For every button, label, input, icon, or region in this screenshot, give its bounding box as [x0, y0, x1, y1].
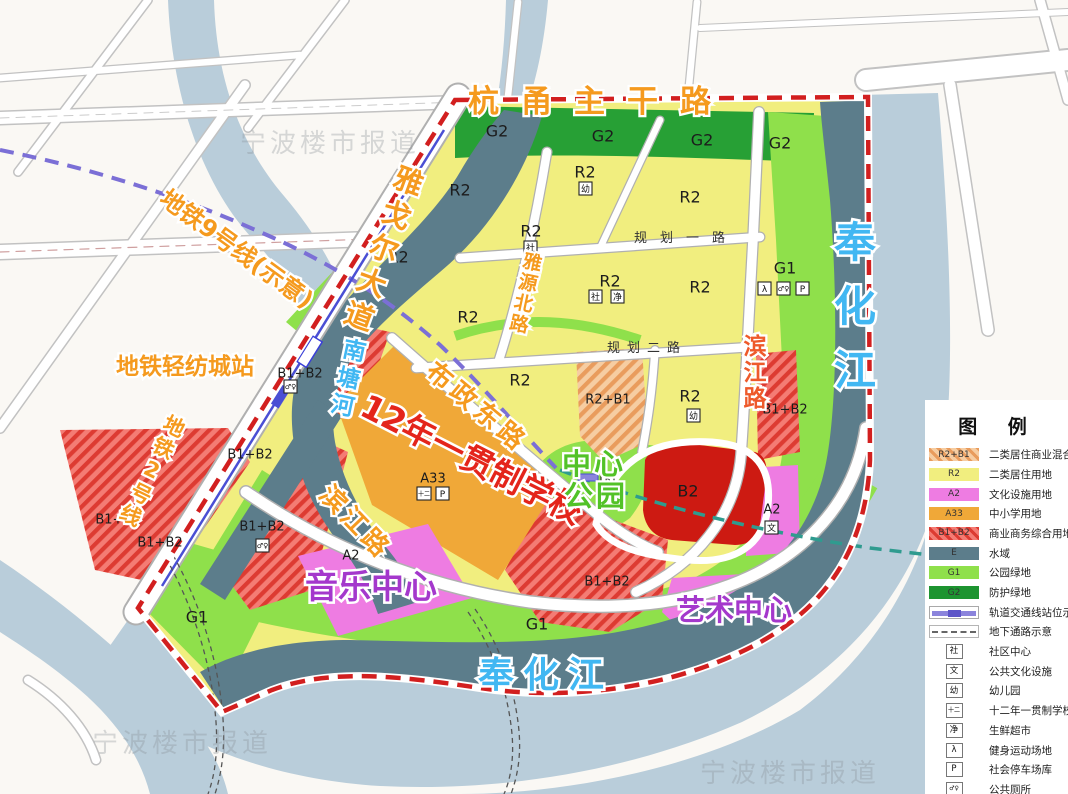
legend-row: B1+B2商业商务综合用地 — [929, 527, 1068, 540]
svg-text:♂♀: ♂♀ — [257, 542, 268, 550]
zone-label-b1b2: B1+B2 — [277, 367, 322, 382]
legend-label: 地下通路示意 — [989, 624, 1052, 639]
kindergarten-icon: 幼 — [687, 409, 700, 422]
svg-text:幼: 幼 — [689, 410, 698, 422]
svg-text:幼: 幼 — [581, 183, 590, 195]
zone-label-r2: R2 — [599, 272, 620, 291]
legend-label: 公共文化设施 — [989, 664, 1052, 679]
legend-label: 中小学用地 — [989, 506, 1042, 521]
legend-row: 轨道交通线站位示意 — [929, 606, 1068, 619]
zone-label-g2: G2 — [592, 127, 615, 146]
legend-swatch: λ — [929, 744, 979, 757]
zone-label-b2: B2 — [677, 482, 698, 501]
svg-text:社: 社 — [591, 291, 600, 303]
zone-label-b1b2: B1+B2 — [584, 575, 629, 590]
zone-label-a2: A2 — [342, 549, 359, 564]
zone-label-g2: G2 — [769, 134, 792, 153]
legend-swatch: B1+B2 — [929, 527, 979, 540]
zone-label-r2: R2 — [689, 278, 710, 297]
svg-text:P: P — [800, 285, 806, 295]
legend-label: 防护绿地 — [989, 585, 1031, 600]
legend-swatch — [929, 625, 979, 638]
svg-text:♂♀: ♂♀ — [285, 383, 296, 391]
legend-label: 幼儿园 — [989, 683, 1021, 698]
label-qingfangcheng-station: 地铁轻纺城站 — [116, 353, 254, 380]
zone-label-r2: R2 — [520, 222, 541, 241]
zone-label-g1: G1 — [186, 608, 209, 627]
legend-panel: 图 例 R2+B1二类居住商业混合用地R2二类居住用地A2文化设施用地A33中小… — [925, 400, 1068, 794]
parking-icon: P — [796, 282, 809, 295]
legend-row: G1公园绿地 — [929, 566, 1068, 579]
planning-map-stage[interactable]: 幼 幼 社 社 净 文 十二 P ♂♀ ♂♀ λ ♂♀ P P G2 G2 G2… — [0, 0, 1068, 794]
legend-row: P社会停车场库 — [929, 763, 1068, 776]
label-fenghua-river-right: 奉化江 — [828, 220, 877, 412]
svg-text:♂♀: ♂♀ — [778, 285, 789, 293]
zone-label-b1b2: B1+B2 — [762, 403, 807, 418]
legend-label: 二类居住用地 — [989, 467, 1052, 482]
legend-label: 公共厕所 — [989, 782, 1031, 794]
legend-label: 商业商务综合用地 — [989, 526, 1068, 541]
legend-swatch: 净 — [929, 724, 979, 737]
legend-label: 社会停车场库 — [989, 762, 1052, 777]
zone-b2 — [643, 445, 767, 545]
label-art-center: 艺术中心 — [676, 593, 792, 627]
legend-label: 公园绿地 — [989, 565, 1031, 580]
culture-facility-icon: 文 — [765, 521, 778, 534]
legend-swatch: 社 — [929, 645, 979, 658]
restroom-icon: ♂♀ — [284, 380, 297, 393]
legend-row: R2+B1二类居住商业混合用地 — [929, 448, 1068, 461]
legend-swatch: 十二 — [929, 704, 979, 717]
label-binjiang-road-east: 滨江路 — [739, 333, 767, 412]
svg-text:宁波楼市报道: 宁波楼市报道 — [700, 759, 880, 789]
legend-label: 文化设施用地 — [989, 487, 1052, 502]
legend-row: 十二十二年一贯制学校 — [929, 704, 1068, 717]
legend-title: 图 例 — [929, 412, 1068, 439]
zone-label-b1b2: B1+B2 — [227, 448, 272, 463]
legend-label: 健身运动场地 — [989, 743, 1052, 758]
legend-row: 社社区中心 — [929, 645, 1068, 658]
legend-row: A2文化设施用地 — [929, 487, 1068, 500]
legend-swatch — [929, 606, 979, 619]
svg-text:宁波楼市报道: 宁波楼市报道 — [92, 729, 272, 759]
legend-swatch: A2 — [929, 488, 979, 501]
svg-text:λ: λ — [762, 285, 768, 295]
label-hangyong-road: 杭甬主干路 — [468, 84, 733, 120]
label-fenghua-river-bottom: 奉化江 — [478, 655, 613, 696]
legend-swatch: G2 — [929, 586, 979, 599]
legend-row: G2防护绿地 — [929, 586, 1068, 599]
school-12yr-icon: 十二 — [417, 487, 431, 500]
community-center-icon: 社 — [589, 290, 602, 303]
parking-icon: P — [436, 487, 449, 500]
zone-label-r2: R2 — [449, 181, 470, 200]
legend-row: 净生鲜超市 — [929, 724, 1068, 737]
fresh-market-icon: 净 — [611, 290, 624, 303]
zone-label-a2: A2 — [763, 503, 780, 518]
zone-label-b1b2: B1+B2 — [239, 520, 284, 535]
restroom-icon: ♂♀ — [256, 539, 269, 552]
svg-text:宁波楼市报道: 宁波楼市报道 — [240, 129, 420, 159]
svg-text:净: 净 — [613, 291, 622, 303]
zone-label-r2: R2 — [679, 387, 700, 406]
zone-label-g1: G1 — [526, 615, 549, 634]
legend-swatch: E — [929, 547, 979, 560]
legend-label: 轨道交通线站位示意 — [989, 605, 1068, 620]
zone-label-r2: R2 — [574, 163, 595, 182]
legend-label: 二类居住商业混合用地 — [989, 447, 1068, 462]
legend-label: 十二年一贯制学校 — [989, 703, 1068, 718]
label-central-park-2: 公园 — [564, 479, 628, 513]
zone-label-r2: R2 — [679, 188, 700, 207]
legend-row: ♂♀公共厕所 — [929, 783, 1068, 794]
legend-rows: R2+B1二类居住商业混合用地R2二类居住用地A2文化设施用地A33中小学用地B… — [929, 448, 1068, 794]
legend-swatch: A33 — [929, 507, 979, 520]
legend-swatch: ♂♀ — [929, 783, 979, 794]
legend-row: 文公共文化设施 — [929, 665, 1068, 678]
legend-row: E水域 — [929, 546, 1068, 559]
legend-label: 水域 — [989, 546, 1010, 561]
restroom-icon: ♂♀ — [777, 282, 790, 295]
zone-label-b1b2: B1+B2 — [137, 536, 182, 551]
zone-label-r2: R2 — [457, 308, 478, 327]
svg-text:文: 文 — [767, 522, 776, 534]
legend-row: A33中小学用地 — [929, 507, 1068, 520]
zone-label-g2: G2 — [691, 131, 714, 150]
planning-map-svg: 幼 幼 社 社 净 文 十二 P ♂♀ ♂♀ λ ♂♀ P P G2 G2 G2… — [0, 0, 1068, 794]
legend-swatch: R2+B1 — [929, 448, 979, 461]
legend-row: 地下通路示意 — [929, 625, 1068, 638]
legend-swatch: 幼 — [929, 684, 979, 697]
legend-swatch: P — [929, 763, 979, 776]
legend-row: R2二类居住用地 — [929, 468, 1068, 481]
legend-row: λ健身运动场地 — [929, 743, 1068, 756]
label-music-center: 音乐中心 — [305, 567, 437, 606]
svg-text:十二: 十二 — [418, 490, 430, 498]
zone-label-a33: A33 — [420, 472, 445, 487]
zone-label-g2: G2 — [486, 122, 509, 141]
legend-label: 生鲜超市 — [989, 723, 1031, 738]
legend-label: 社区中心 — [989, 644, 1031, 659]
kindergarten-icon: 幼 — [579, 182, 592, 195]
label-guihua-road-2: 规划二路 — [607, 340, 687, 356]
legend-row: 幼幼儿园 — [929, 684, 1068, 697]
legend-swatch: G1 — [929, 566, 979, 579]
svg-text:P: P — [440, 490, 446, 500]
label-guihua-road-1: 规划一路 — [634, 230, 738, 246]
fitness-icon: λ — [758, 282, 771, 295]
label-central-park-1: 中心 — [562, 447, 626, 481]
legend-swatch: 文 — [929, 665, 979, 678]
zone-label-r2: R2 — [509, 371, 530, 390]
zone-label-g1: G1 — [774, 259, 797, 278]
zone-label-r2b1: R2+B1 — [585, 393, 630, 408]
legend-swatch: R2 — [929, 468, 979, 481]
